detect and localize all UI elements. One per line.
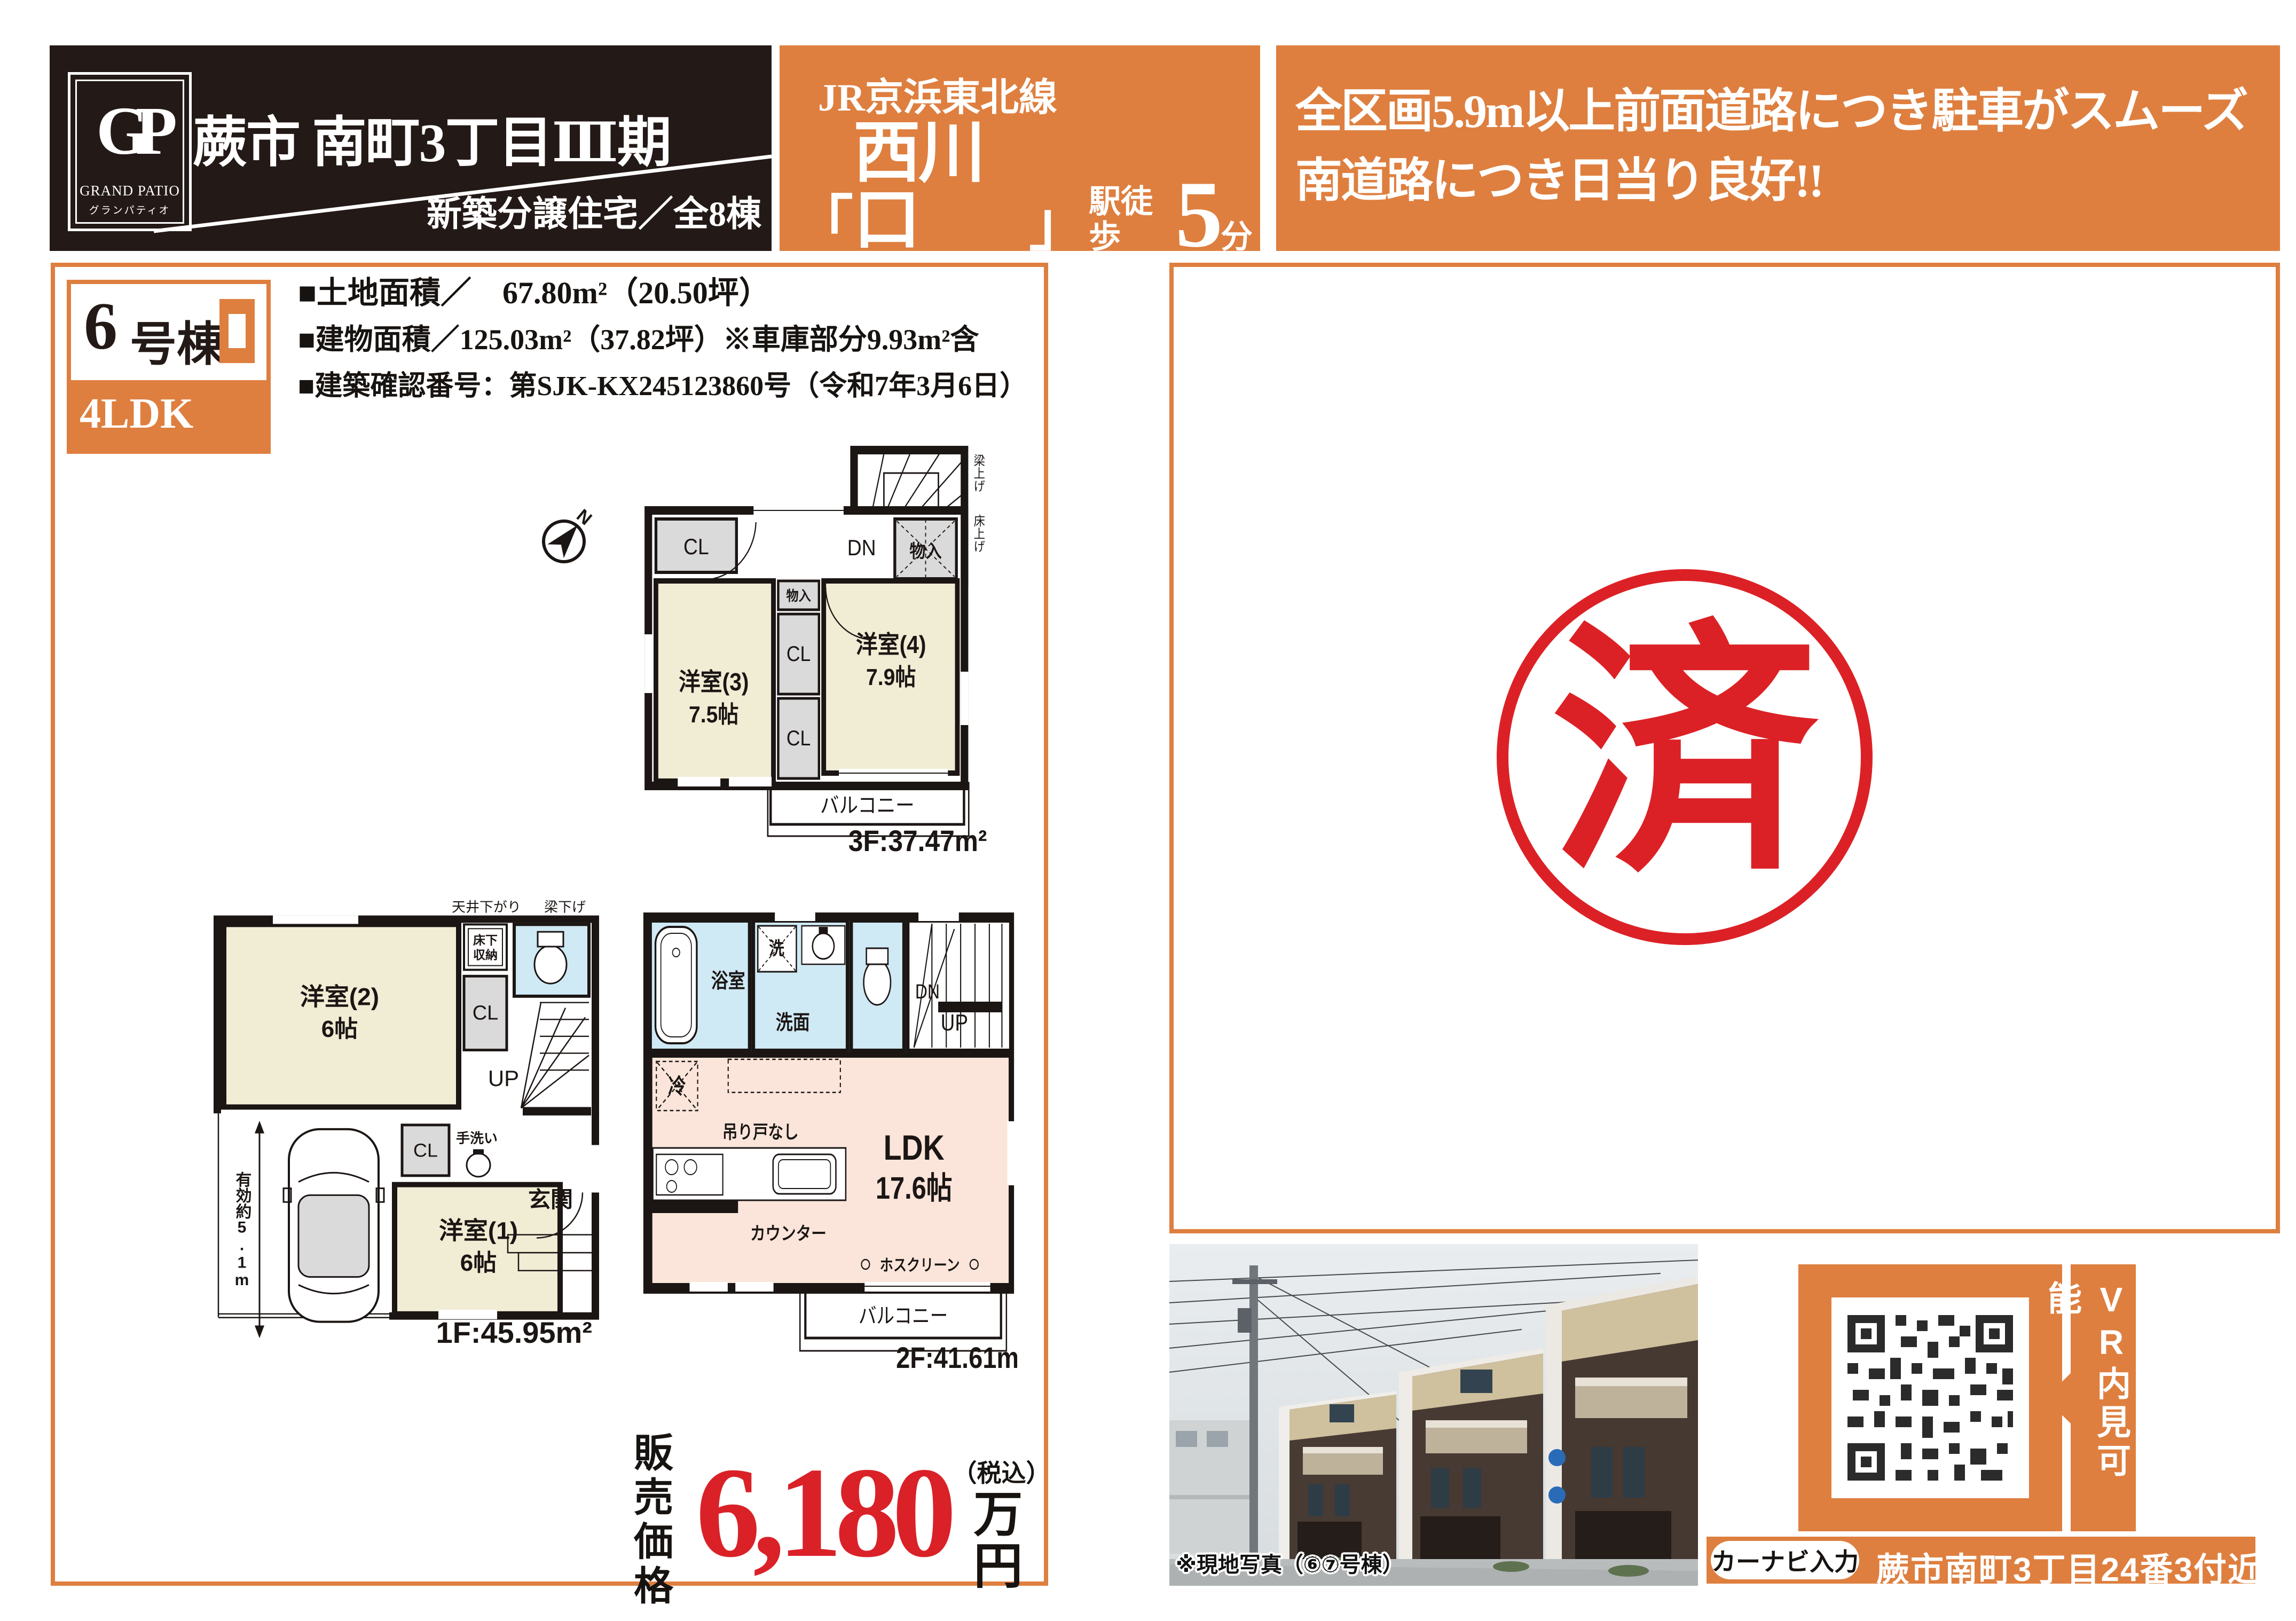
label-storage-2: 物入 [787, 588, 812, 604]
catch-line-1: 全区画5.9m以上前面道路につき駐車がスムーズ [1295, 73, 2247, 141]
sold-stamp: 済 [1497, 569, 1873, 945]
price-block: 販売 価格 6,180 （税込） 万円 [617, 1457, 1044, 1585]
label-room2: 洋室(2) [300, 983, 379, 1011]
label-room4: 洋室(4) [856, 632, 926, 659]
label-2f-area: 2F:41.61m² [896, 1341, 1017, 1372]
photo-caption: ※現地写真（⑥⑦号棟） [1176, 1547, 1404, 1578]
sold-stamp-char: 済 [1508, 596, 1861, 916]
label-washroom: 洗面 [776, 1011, 810, 1034]
logo-name: GRAND PATIO [77, 183, 183, 199]
layout-label: 4LDK [80, 390, 193, 438]
land-area: ■土地面積／ 67.80m²（20.50坪） [298, 270, 1027, 316]
label-storage: 物入 [909, 541, 941, 561]
unit-badge: 6 号棟 4LDK [67, 280, 271, 454]
vr-banner: VR内見可能 [2071, 1264, 2136, 1531]
site-photo-image [1169, 1244, 1698, 1586]
unit-suffix: 号棟 [130, 306, 224, 374]
price-amount: 6,180 [696, 1448, 949, 1577]
label-handwash: 手洗い [456, 1131, 498, 1146]
note-beam-1f: 梁下げ [544, 900, 586, 915]
label-cl-3: CL [787, 727, 811, 750]
qr-code [1842, 1310, 2018, 1486]
label-balcony: バルコニー [820, 794, 915, 817]
label-no-cupboard: 吊り戸なし [722, 1122, 799, 1143]
property-details: ■土地面積／ 67.80m²（20.50坪） ■建物面積／125.03m²（37… [298, 270, 1027, 410]
site-photo: ※現地写真（⑥⑦号棟） [1169, 1244, 1698, 1586]
label-2f-balcony: バルコニー [859, 1304, 948, 1327]
label-ldk-size: 17.6帖 [876, 1171, 953, 1206]
bracket-close: 」 [1029, 195, 1089, 255]
bracket-open: 「 [793, 195, 853, 255]
development-subtitle: 新築分譲住宅／全8棟 [427, 185, 761, 237]
status-panel: 済 [1169, 263, 2280, 1233]
station-block: JR京浜東北線 「 西川口 」 駅徒歩 5 分 [780, 45, 1260, 251]
logo-kana: グランパティオ [77, 202, 183, 217]
station-access: 「 西川口 」 駅徒歩 5 分 [793, 120, 1253, 255]
logo-monogram: GP [77, 91, 183, 171]
vr-label: VR内見可能 [2071, 1280, 2136, 1515]
note-floor: 床上げ [972, 514, 985, 553]
price-unit: 万円 [952, 1489, 1044, 1592]
building-area: ■建物面積／125.03m²（37.82坪）※車庫部分9.93m²含 [298, 316, 1027, 363]
note-beam: 梁上げ [972, 454, 985, 492]
label-entrance: 玄関 [528, 1187, 573, 1212]
vr-arrow-icon [2042, 1369, 2073, 1428]
unit-number: 6 [84, 288, 117, 365]
header-black: GP GRAND PATIO グランパティオ 蕨市 南町3丁目Ⅲ期 新築分譲住宅… [50, 45, 772, 251]
walk-unit: 分 [1221, 219, 1253, 255]
walk-label: 駅徒歩 [1089, 184, 1175, 255]
catch-line-2: 南道路につき日当り良好!! [1295, 143, 1823, 210]
north-compass-icon: N [534, 508, 593, 567]
label-room1-size: 6帖 [460, 1250, 497, 1276]
price-tax-note: （税込） [952, 1454, 1044, 1489]
label-ldk: LDK [884, 1128, 945, 1167]
plot-marker-icon [219, 299, 255, 363]
catch-copy-block: 全区画5.9m以上前面道路につき駐車がスムーズ 南道路につき日当り良好!! [1276, 45, 2280, 251]
label-garage-note: 有効約5.1m [233, 1171, 251, 1289]
label-2f-dn: DN [915, 980, 940, 1003]
price-label-2: 価格 [617, 1521, 690, 1609]
building-permit: ■建築確認番号：第SJK-KX245123860号（令和7年3月6日） [298, 363, 1027, 410]
label-underfloor-2: 収納 [473, 948, 498, 962]
label-1f-cl: CL [473, 1002, 499, 1024]
label-1f-cl2: CL [413, 1139, 438, 1161]
label-room4-size: 7.9帖 [866, 664, 916, 690]
label-underfloor-1: 床下 [473, 933, 498, 947]
note-ceiling: 天井下がり [452, 900, 521, 915]
label-hoscreen: ホスクリーン [880, 1256, 960, 1274]
label-washer: 洗 [769, 939, 784, 959]
label-room2-size: 6帖 [321, 1016, 358, 1042]
flyer-page: GP GRAND PATIO グランパティオ 蕨市 南町3丁目Ⅲ期 新築分譲住宅… [0, 0, 2296, 1621]
floorplan-1f: 洋室(2) 6帖 床下 収納 CL UP 手洗い CL 洋室(1) 6帖 玄関 … [209, 897, 604, 1351]
label-3f-area: 3F:37.47m² [848, 824, 987, 857]
walk-minutes: 5 [1175, 174, 1221, 255]
carnavi-label: カーナビ入力 [1711, 1541, 1859, 1579]
grand-patio-logo: GP GRAND PATIO グランパティオ [68, 72, 192, 231]
carnavi-address: 蕨市南町3丁目24番3付近 [1876, 1543, 2262, 1591]
label-2f-up: UP [941, 1009, 968, 1036]
station-name: 西川口 [853, 120, 1029, 255]
qr-block [1798, 1264, 2062, 1531]
label-room1: 洋室(1) [439, 1217, 518, 1245]
floorplan-2f: 浴室 洗 洗面 DN UP 冷 吊り戸なし カウンター LDK 17.6帖 ホス… [640, 897, 1017, 1372]
label-cl: CL [683, 534, 709, 560]
label-room3-size: 7.5帖 [689, 701, 738, 728]
development-title: 蕨市 南町3丁目Ⅲ期 [193, 99, 671, 177]
label-1f-area: 1F:45.95m² [436, 1316, 592, 1349]
price-label-1: 販売 [617, 1432, 690, 1521]
carnavi-bar: カーナビ入力 蕨市南町3丁目24番3付近 [1707, 1537, 2255, 1584]
label-fridge: 冷 [668, 1074, 686, 1098]
label-counter: カウンター [750, 1224, 827, 1244]
property-panel: 6 号棟 4LDK ■土地面積／ 67.80m²（20.50坪） ■建物面積／1… [51, 263, 1048, 1586]
label-dn: DN [847, 536, 876, 561]
label-up: UP [488, 1066, 519, 1091]
floorplan-3f: CL 物入 DN 物入 CL CL 洋室(3) 7.5帖 洋室(4) 7.9帖 … [611, 421, 1033, 859]
label-bath: 浴室 [711, 969, 745, 992]
label-room3: 洋室(3) [679, 669, 749, 696]
label-cl-2: CL [787, 642, 811, 666]
rail-line: JR京浜東北線 [818, 66, 1057, 122]
